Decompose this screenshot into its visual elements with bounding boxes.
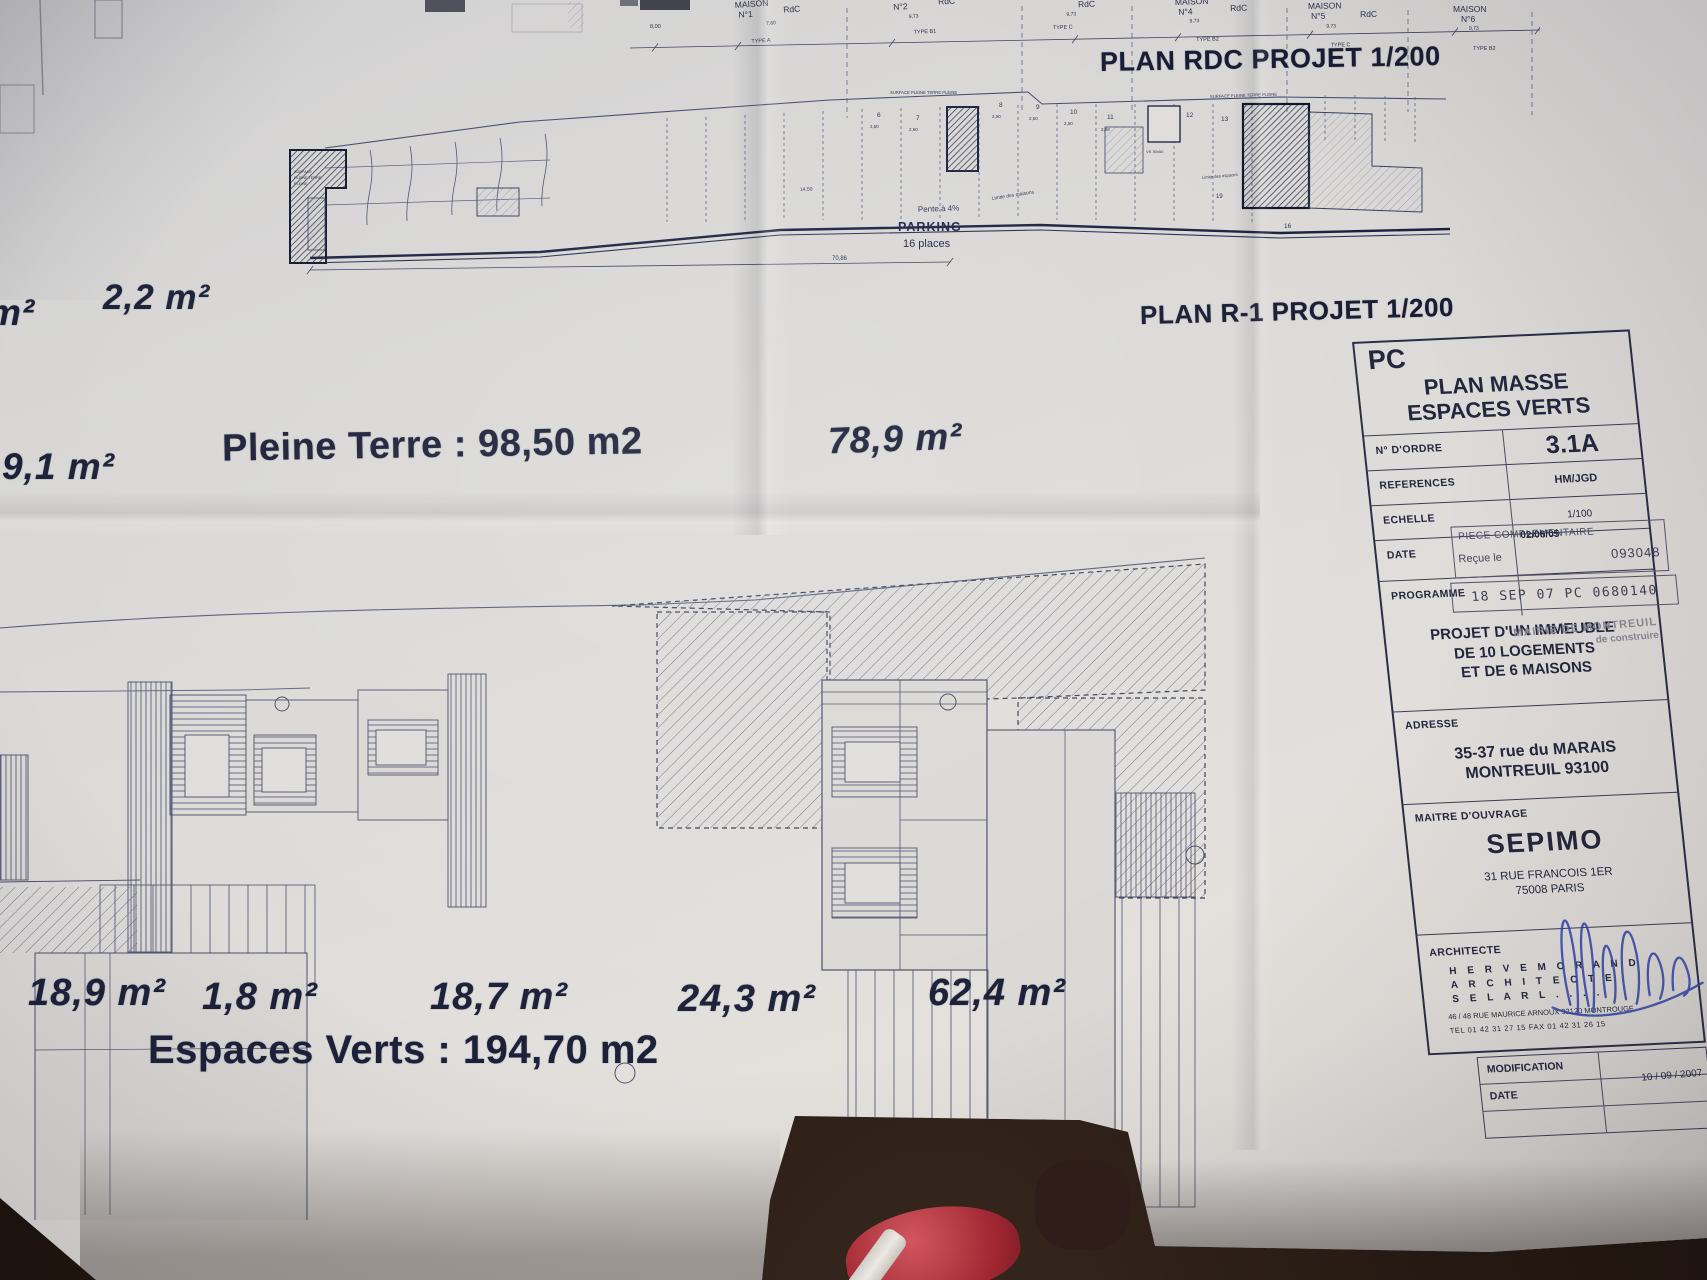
ordre-value: 3.1A — [1503, 424, 1641, 464]
espaces-verts-label: Espaces Verts : 194,70 m2 — [148, 1028, 659, 1073]
piece-complementaire-stamp: PIECE COMPLEMENTAIRE 02/06/05 Reçue le 0… — [1450, 519, 1669, 578]
svg-text:12: 12 — [1186, 112, 1194, 119]
svg-text:9,73: 9,73 — [1189, 18, 1199, 24]
adresse-block: ADRESSE 35-37 rue du MARAIS MONTREUIL 93… — [1393, 699, 1677, 804]
modif-date-value-cell: 10 / 09 / 2007 — [1601, 1075, 1707, 1106]
svg-text:19: 19 — [1216, 194, 1223, 200]
svg-text:MAISON: MAISON — [1453, 4, 1487, 14]
stair-cores-and-hatches — [290, 104, 1422, 263]
left-buildings-cluster — [0, 674, 486, 1220]
dim-mid: 14,50 — [800, 187, 813, 193]
svg-text:11: 11 — [1107, 114, 1114, 121]
plan-r1-title: PLAN R-1 PROJET 1/200 — [1140, 292, 1455, 331]
date-value: 02/06/05 — [1520, 529, 1560, 541]
maison-party-walls — [367, 134, 547, 225]
svg-text:RdC: RdC — [1230, 2, 1247, 13]
area-edge-partial: m² — [0, 292, 35, 334]
moa-label: MAITRE D'OUVRAGE — [1414, 808, 1528, 825]
empty-label — [1483, 1106, 1607, 1137]
svg-text:13: 13 — [1221, 116, 1229, 123]
title-block-main: PC PLAN MASSE ESPACES VERTS N° D'ORDRE 3… — [1352, 329, 1706, 1055]
svg-text:2,50: 2,50 — [1029, 116, 1038, 121]
area-78-9: 78,9 m² — [827, 416, 963, 463]
moa-name: SEPIMO — [1406, 821, 1683, 864]
surface-left-2: PLEINE TERRE — [294, 176, 322, 180]
svg-text:TYPE B2: TYPE B2 — [1196, 36, 1219, 43]
pleine-terre-label: Pleine Terre : 98,50 m2 — [222, 420, 643, 470]
svg-text:2,60: 2,60 — [909, 127, 918, 132]
svg-text:N°5: N°5 — [1311, 11, 1326, 21]
area-9-1: 9,1 m² — [2, 446, 115, 488]
svg-text:6: 6 — [877, 112, 881, 119]
photo-of-architectural-plan: 8,00 MAISON N°1 RdC 7,60 TYPE A N°2 RdC … — [0, 0, 1707, 1280]
svg-text:2,50: 2,50 — [992, 114, 1001, 119]
dim-total: 70,86 — [832, 256, 848, 262]
references-label: REFERENCES — [1368, 465, 1510, 505]
svg-text:TYPE C: TYPE C — [1053, 25, 1073, 32]
area-18-9: 18,9 m² — [28, 972, 166, 1015]
modif-date-label: DATE — [1481, 1079, 1605, 1110]
surface-left-1: SURFACE — [294, 170, 312, 174]
piece-stamp-number: 093048 — [1610, 544, 1661, 561]
svg-text:2,50: 2,50 — [1064, 121, 1073, 126]
svg-text:7,60: 7,60 — [766, 20, 776, 27]
dim-left: 8,00 — [650, 24, 661, 30]
modification-label: MODIFICATION — [1478, 1053, 1602, 1084]
architecte-block: ARCHITECTE H E R V E M O R A N D A R C H… — [1417, 922, 1703, 1053]
adresse-label: ADRESSE — [1404, 718, 1459, 732]
surface-left-3: PLEINE — [294, 182, 308, 186]
center-building — [822, 680, 987, 970]
svg-text:RdC: RdC — [938, 0, 956, 6]
svg-text:9,73: 9,73 — [1066, 11, 1076, 17]
programme-block: PROJET D'UN IMMEUBLE DE 10 LOGEMENTS ET … — [1384, 609, 1667, 711]
svg-text:N°4: N°4 — [1178, 6, 1193, 17]
plan-rdc-title: PLAN RDC PROJET 1/200 — [1100, 41, 1441, 78]
svg-text:8: 8 — [999, 102, 1003, 109]
pente-label: Pente à 4% — [918, 204, 960, 214]
area-18-7: 18,7 m² — [430, 976, 568, 1019]
title-block: PC PLAN MASSE ESPACES VERTS N° D'ORDRE 3… — [1352, 329, 1707, 1141]
svg-text:N°6: N°6 — [1461, 14, 1476, 24]
architecte-label: ARCHITECTE — [1429, 944, 1502, 959]
plan-masse-drawing — [0, 520, 1250, 1220]
limite-espaces: Limite des espaces — [1202, 172, 1238, 180]
ordre-label: N° D'ORDRE — [1364, 430, 1506, 470]
title-block-header: PC PLAN MASSE ESPACES VERTS — [1354, 331, 1638, 435]
sheet-corner-fragments — [0, 0, 250, 140]
svg-text:N°2: N°2 — [893, 1, 908, 12]
svg-text:9,73: 9,73 — [909, 14, 919, 21]
doc-type: PC — [1366, 344, 1407, 377]
limite-maisons: Limite des maisons — [991, 189, 1035, 202]
piece-stamp-recue: Reçue le — [1458, 552, 1503, 565]
svg-text:9,73: 9,73 — [1326, 24, 1336, 30]
parking-title: PARKING — [898, 220, 962, 234]
plan-sheet-paper: 8,00 MAISON N°1 RdC 7,60 TYPE A N°2 RdC … — [0, 0, 1707, 1280]
svg-text:TYPE A: TYPE A — [751, 38, 771, 45]
svg-text:2,50: 2,50 — [870, 124, 879, 129]
modification-table: MODIFICATION DATE 10 / 09 / 2007 — [1477, 1047, 1707, 1139]
svg-text:RdC: RdC — [783, 3, 801, 14]
area-2-2: 2,2 m² — [103, 278, 210, 318]
parking-places: 16 places — [903, 238, 951, 250]
svg-text:10: 10 — [1070, 109, 1078, 116]
svg-text:16: 16 — [1284, 223, 1292, 230]
area-62-4: 62,4 m² — [928, 972, 1066, 1015]
area-1-8: 1,8 m² — [202, 976, 318, 1019]
dark-background-blob — [1035, 1160, 1130, 1250]
vs-label: VS 30x50 — [1146, 149, 1164, 154]
surface-center: SURFACE PLEINE TERRE PLEINE — [890, 90, 957, 95]
svg-text:7: 7 — [916, 115, 920, 122]
svg-text:RdC: RdC — [1078, 0, 1095, 9]
empty-value — [1604, 1101, 1707, 1132]
architect-signature — [1520, 881, 1707, 1044]
svg-text:MAISON: MAISON — [1308, 0, 1342, 11]
strip-small-texts: SURFACE PLEINE TERRE PLEINE SURFACE PLEI… — [294, 90, 1277, 262]
svg-text:9: 9 — [1036, 104, 1040, 111]
pc-stamp-text: 18 SEP 07 PC 0680140 — [1471, 583, 1659, 605]
svg-text:RdC: RdC — [1360, 9, 1377, 19]
references-value: HM/JGD — [1507, 459, 1645, 499]
area-24-3: 24,3 m² — [678, 978, 816, 1021]
svg-text:TYPE B2: TYPE B2 — [1473, 46, 1496, 52]
svg-text:TYPE B1: TYPE B1 — [913, 29, 936, 36]
svg-text:N°1: N°1 — [738, 9, 753, 20]
